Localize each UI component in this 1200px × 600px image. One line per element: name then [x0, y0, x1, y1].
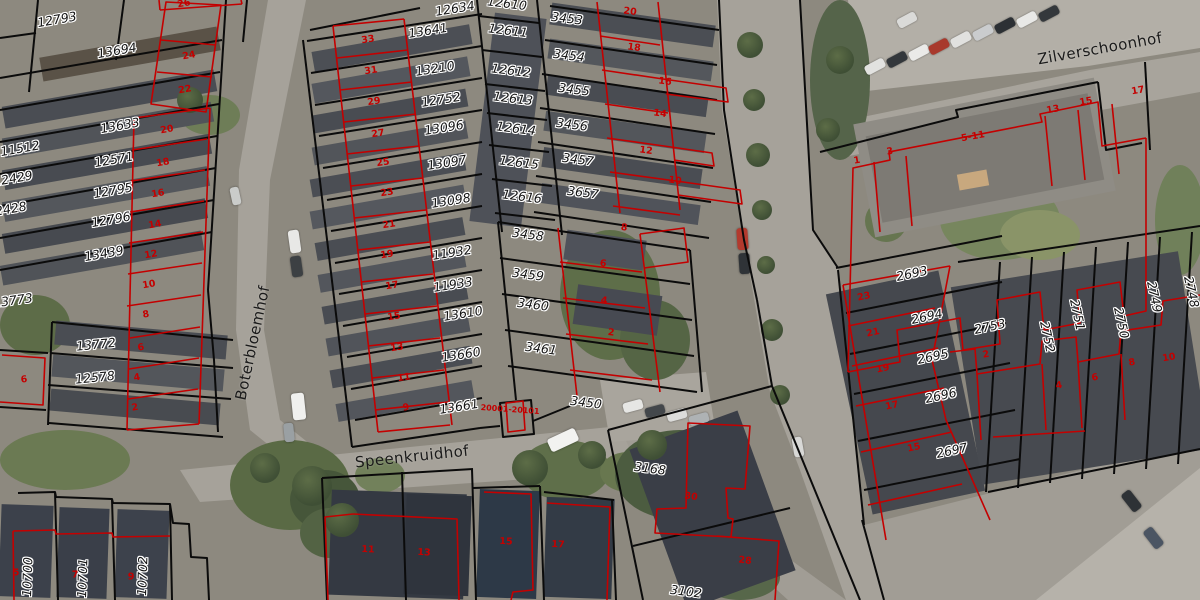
house-number-label: 26 — [177, 0, 192, 10]
street-name-label: Zilverschoonhof — [1037, 31, 1164, 68]
house-number-label: 28 — [738, 555, 752, 566]
parcel-number-label: 13633 — [99, 116, 140, 135]
street-name-label: Boterbloemhof — [234, 284, 273, 401]
house-number-label: 8 — [1128, 358, 1136, 369]
house-number-label: 1 — [853, 156, 861, 167]
house-number-label: 17 — [885, 400, 900, 412]
house-number-label: 12 — [639, 145, 653, 156]
parcel-number-label: 12428 — [0, 200, 28, 219]
parcel-number-label: 3456 — [555, 117, 588, 133]
parcel-number-label: 13694 — [96, 41, 137, 60]
parcel-number-label: 13641 — [407, 22, 448, 41]
parcel-number-label: 3102 — [669, 584, 702, 600]
house-number-label: 19 — [380, 249, 395, 260]
parcel-number-label: 3454 — [552, 48, 585, 64]
parcel-number-label: 2748 — [1182, 275, 1200, 309]
house-number-label: 31 — [364, 65, 379, 76]
parcel-number-label: 12578 — [75, 370, 116, 387]
house-number-label: 16 — [658, 76, 672, 87]
parcel-number-label: 2750 — [1112, 306, 1131, 340]
parcel-number-label: 13610 — [442, 305, 483, 324]
parcel-number-label: 12571 — [93, 150, 134, 169]
house-number-label: 19 — [876, 363, 891, 375]
parcel-number-label: 12796 — [90, 210, 131, 229]
parcel-number-label: 3459 — [511, 267, 544, 283]
house-number-label: 15 — [907, 442, 922, 454]
house-number-label: 29 — [367, 96, 382, 107]
parcel-number-label: 3453 — [550, 11, 583, 27]
parcel-number-label: 2695 — [916, 348, 950, 367]
parcel-number-label: 10700 — [21, 557, 35, 597]
parcel-number-label: 2697 — [935, 442, 969, 461]
parcel-number-label: 12610 — [487, 0, 528, 13]
parcel-number-label: 3460 — [516, 297, 549, 313]
house-number-label: 20001-20101 — [480, 404, 539, 416]
house-number-label: 21 — [382, 219, 397, 230]
house-number-label: 20 — [623, 6, 637, 17]
house-number-label: 4 — [1055, 381, 1063, 392]
house-number-label: 5-11 — [960, 130, 985, 143]
house-number-label: 13 — [390, 342, 405, 353]
house-number-label: 6 — [599, 259, 607, 269]
house-number-label: 10 — [668, 175, 682, 186]
house-number-label: 17 — [551, 540, 565, 550]
parcel-number-label: 12429 — [0, 169, 34, 188]
parcel-number-label: 13660 — [440, 346, 481, 365]
house-number-label: 18 — [627, 42, 641, 53]
house-number-label: 2 — [982, 350, 990, 361]
parcel-number-label: 2751 — [1068, 298, 1087, 332]
parcel-number-label: 13097 — [426, 154, 467, 173]
parcel-number-label: 12752 — [420, 91, 461, 110]
house-number-label: 11 — [397, 372, 412, 383]
house-number-label: 30 — [684, 491, 698, 502]
parcel-number-label: 13096 — [423, 119, 464, 138]
parcel-number-label: 3657 — [566, 185, 599, 201]
house-number-label: 6 — [20, 375, 28, 385]
house-number-label: 14 — [148, 219, 163, 231]
parcel-number-label: 12793 — [36, 10, 77, 29]
parcel-number-label: 11932 — [431, 244, 472, 263]
parcel-number-label: 12795 — [92, 181, 133, 200]
aerial-cadastral-map-canvas[interactable]: 1279313694136331151212571124291279512428… — [0, 0, 1200, 600]
parcel-number-label: 12615 — [499, 154, 540, 171]
house-number-label: 21 — [866, 327, 881, 339]
parcel-number-label: 3457 — [561, 152, 594, 168]
parcel-number-label: 2694 — [910, 308, 944, 327]
house-number-label: 4 — [600, 296, 608, 306]
parcel-number-label: 3461 — [524, 341, 557, 357]
house-number-label: 14 — [653, 108, 667, 119]
house-number-label: 13 — [417, 548, 431, 558]
parcel-number-label: 12634 — [434, 0, 475, 18]
parcel-number-label: 3450 — [569, 395, 602, 411]
house-number-label: 13 — [1046, 104, 1061, 116]
house-number-label: 6 — [1091, 373, 1099, 384]
parcel-number-label: 11933 — [432, 276, 473, 295]
house-number-label: 4 — [133, 373, 141, 384]
house-number-label: 10 — [142, 279, 157, 291]
house-number-label: 18 — [156, 157, 171, 169]
parcel-number-label: 12612 — [491, 62, 532, 79]
house-number-label: 25 — [376, 157, 391, 168]
house-number-label: 8 — [620, 223, 628, 233]
parcel-number-label: 13773 — [0, 292, 34, 310]
house-number-label: 9 — [402, 403, 410, 413]
house-number-label: 20 — [160, 124, 175, 136]
parcel-number-label: 12614 — [496, 120, 537, 137]
house-number-label: 3 — [886, 147, 894, 158]
parcel-number-label: 13661 — [438, 398, 479, 417]
house-number-label: 7 — [72, 570, 79, 580]
parcel-number-label: 2752 — [1038, 320, 1057, 354]
parcel-number-label: 2749 — [1145, 280, 1164, 314]
house-number-label: 2 — [131, 403, 139, 414]
parcel-number-label: 13439 — [83, 244, 124, 263]
house-number-label: 10 — [1162, 352, 1177, 364]
house-number-label: 15 — [1079, 96, 1094, 108]
parcel-number-label: 13098 — [430, 192, 471, 211]
parcel-number-label: 12613 — [493, 90, 534, 107]
parcel-number-label: 2753 — [973, 318, 1007, 337]
parcel-number-label: 11512 — [0, 139, 41, 158]
parcel-number-label: 2696 — [924, 387, 958, 406]
house-number-label: 23 — [857, 291, 872, 303]
house-number-label: 15 — [387, 311, 402, 322]
parcel-number-label: 10702 — [136, 556, 150, 596]
house-number-label: 12 — [144, 249, 159, 261]
house-number-label: 24 — [182, 50, 197, 62]
house-number-label: 22 — [178, 84, 193, 96]
house-number-label: 8 — [142, 310, 150, 321]
parcel-number-label: 13772 — [76, 337, 117, 354]
house-number-label: 2 — [607, 328, 615, 338]
street-name-label: Speenkruidhof — [354, 444, 469, 471]
house-number-label: 11 — [361, 545, 375, 555]
house-number-label: 16 — [151, 188, 166, 200]
house-number-label: 15 — [499, 537, 513, 547]
parcel-number-label: 3458 — [511, 227, 544, 243]
house-number-label: 5 — [13, 568, 20, 578]
parcel-number-label: 3168 — [633, 461, 666, 477]
parcel-number-label: 12611 — [488, 22, 529, 39]
labels-layer: 1279313694136331151212571124291279512428… — [0, 0, 1200, 600]
house-number-label: 6 — [137, 343, 145, 354]
house-number-label: 23 — [380, 187, 395, 198]
parcel-number-label: 12616 — [502, 188, 543, 205]
house-number-label: 17 — [385, 280, 400, 291]
house-number-label: 9 — [128, 572, 135, 582]
house-number-label: 27 — [371, 128, 386, 139]
parcel-number-label: 3455 — [557, 82, 590, 98]
parcel-number-label: 2693 — [895, 265, 929, 284]
parcel-number-label: 13210 — [414, 60, 455, 79]
house-number-label: 17 — [1131, 85, 1146, 97]
house-number-label: 33 — [361, 34, 376, 45]
